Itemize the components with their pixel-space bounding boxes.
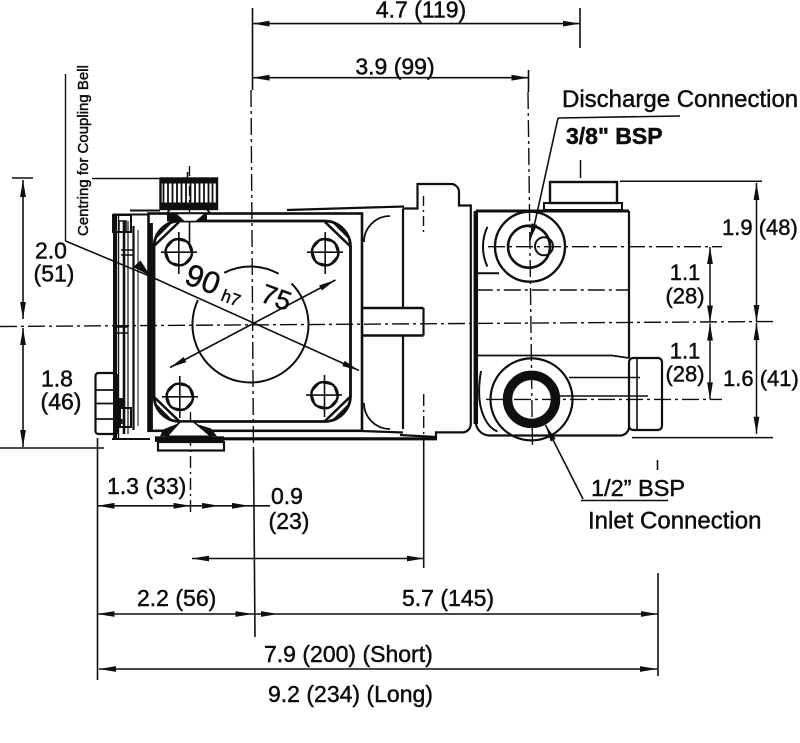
svg-text:Inlet Connection: Inlet Connection xyxy=(588,508,761,535)
svg-text:Discharge Connection: Discharge Connection xyxy=(562,86,798,113)
svg-text:3.9 (99): 3.9 (99) xyxy=(355,54,434,80)
svg-text:3/8" BSP: 3/8" BSP xyxy=(566,123,663,149)
svg-text:7.9 (200) (Short): 7.9 (200) (Short) xyxy=(264,641,433,667)
svg-text:1/2” BSP: 1/2” BSP xyxy=(591,475,685,501)
svg-text:5.7 (145): 5.7 (145) xyxy=(402,585,494,611)
svg-text:0.9: 0.9 xyxy=(271,483,303,509)
svg-text:(28): (28) xyxy=(665,284,704,309)
svg-text:(46): (46) xyxy=(41,389,82,415)
svg-text:1.1: 1.1 xyxy=(670,260,701,285)
svg-text:4.7 (119): 4.7 (119) xyxy=(376,0,466,23)
svg-text:(28): (28) xyxy=(665,362,704,387)
svg-text:1.3 (33): 1.3 (33) xyxy=(107,473,186,499)
svg-text:1.1: 1.1 xyxy=(670,339,701,364)
svg-text:9.2 (234) (Long): 9.2 (234) (Long) xyxy=(268,681,433,707)
svg-text:(23): (23) xyxy=(269,508,310,534)
svg-text:(51): (51) xyxy=(34,261,75,287)
svg-text:Centring for Coupling Bell: Centring for Coupling Bell xyxy=(75,65,92,236)
svg-text:1.9 (48): 1.9 (48) xyxy=(722,215,798,240)
svg-text:1.6 (41): 1.6 (41) xyxy=(723,366,799,391)
svg-text:2.2 (56): 2.2 (56) xyxy=(137,585,216,611)
